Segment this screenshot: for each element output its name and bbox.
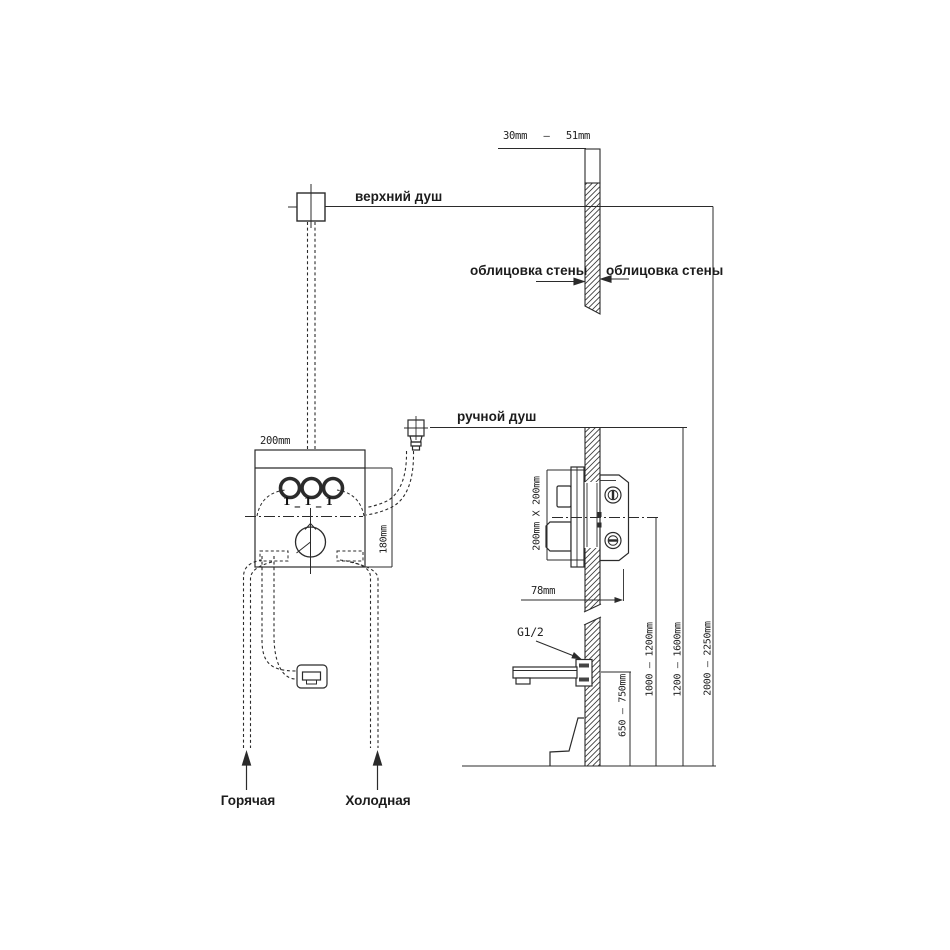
supply-arrows [243,752,382,790]
cladding-max: 51mm [566,130,590,142]
upper-shower-height-dimension: 2000 — 2250mm [702,579,715,739]
control-box-front-view [245,450,392,574]
bath-spout-side-view [513,641,592,766]
spout-body [513,667,577,678]
hot-supply-arrow [243,752,251,765]
cold-supply-label: Холодная [344,793,412,808]
supply-pipes-dashed [244,556,379,748]
wall-section-lower [584,428,601,767]
wall-cladding-label-left: облицовка стены [470,263,580,278]
ceiling-pipe-dashed [308,222,316,468]
wall-section-upper [498,149,600,315]
cold-supply-arrow [374,752,382,765]
mixer-height-dimension: 1000 — 1200mm [644,580,657,740]
mixer-depth-dimension: 78mm [531,585,555,597]
bathtub-profile [550,718,584,766]
cladding-min: 30mm [503,130,527,142]
g12-leader-line [536,641,574,656]
knob-position-marks: 1_1_1 [281,495,339,508]
box-width-dimension: 200mm [260,435,290,447]
installation-diagram: 30mm — 51mm верхний душ облицовка стены … [0,0,950,950]
hand-shower-height-dimension: 1200 — 1600mm [672,580,685,740]
wall-cladding-label-right: облицовка стены [606,263,723,278]
cladding-separator: — [543,130,549,142]
spout-height-dimension: 650 — 750mm [617,626,630,786]
mixer-cutout-dimension: 200mm X 200mm [531,434,544,594]
diagram-linework [0,0,950,950]
box-height-dimension: 180mm [378,460,391,620]
hand-shower-label: ручной душ [457,409,536,424]
hot-supply-label: Горячая [219,793,277,808]
cladding-range-dimension: 30mm — 51mm [503,130,590,142]
upper-shower-label: верхний душ [355,189,442,204]
spout-connection-box [297,665,327,688]
upper-shower-head [288,184,325,228]
hand-shower-outlet [404,416,428,450]
thread-size-label: G1/2 [517,625,544,639]
